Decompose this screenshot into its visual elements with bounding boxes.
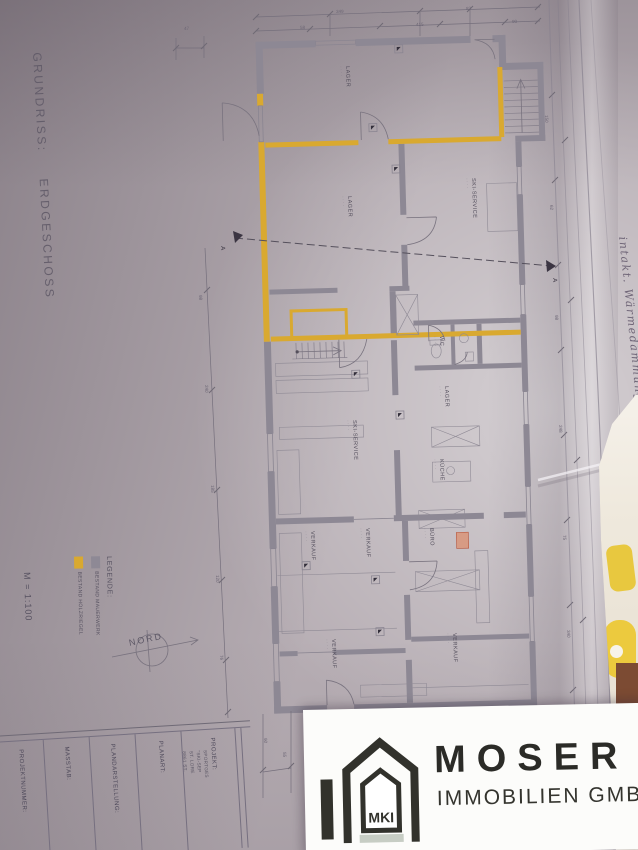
room-label: LAGER· · · ·: [341, 196, 353, 218]
dimension-number: 76: [219, 655, 224, 660]
titleblock-project-line: 8861 ST.: [182, 751, 188, 772]
dimension-number: 75: [562, 535, 567, 540]
dimension-number: 340: [566, 630, 571, 638]
building: [221, 34, 562, 715]
legend: LEGENDE: BESTAND MAUERWERKBESTAND HOLZRI…: [66, 556, 113, 636]
room-label: WC· · · ·: [433, 336, 444, 347]
mki-house-icon: MKI: [315, 719, 434, 849]
room-label: SKI-SERVICE· · · ·: [346, 420, 359, 461]
titleblock-project-line: ST. LORE: [189, 751, 195, 774]
background-highlight: [610, 645, 623, 658]
dimension-number: 415: [416, 22, 424, 27]
titleblock-field-label: PROJEKT:: [209, 737, 217, 770]
mki-badge-text: MKI: [368, 809, 394, 826]
room-label: SKI-SERVICE· · · ·: [465, 178, 478, 219]
legend-label: BESTAND MAUERWERK: [93, 571, 100, 636]
title-block: PROJEKTNUMMER:MASSTAB:PLANDARSTELLUNG:PL…: [0, 720, 258, 850]
dimension-number: 248: [558, 425, 563, 433]
legend-swatch: [91, 556, 100, 568]
titleblock-field-label: MASSTAB:: [63, 746, 71, 780]
dimension-number: 47: [184, 26, 189, 31]
dimension-number: 98: [554, 315, 559, 320]
dimension-number: 90: [263, 738, 268, 743]
titleblock-field-label: PROJEKTNUMMER:: [17, 749, 27, 813]
legend-items: BESTAND MAUERWERKBESTAND HOLZRIEGEL: [66, 556, 101, 636]
legend-swatch: [74, 557, 83, 569]
legend-heading: LEGENDE:: [105, 556, 113, 636]
dimension-number: 82: [466, 6, 471, 11]
floorplan-photo: .w{fill:#8d8894;} .yw{fill:#d9a930;} .tw…: [0, 0, 638, 850]
title-block-divider: [89, 737, 97, 850]
dimension-number: 120: [215, 575, 220, 583]
titleblock-project-line: "SKI-SEP: [196, 750, 202, 772]
section-marker-label: A: [219, 246, 225, 250]
yellow-object: [605, 544, 636, 593]
section-line: A A: [219, 231, 557, 282]
dimension-number: 90: [512, 19, 517, 24]
dimension-number: 98: [198, 295, 203, 300]
room-label: VERKAUF· · · ·: [359, 528, 371, 558]
room-label: LAGER· · · ·: [339, 66, 351, 88]
dimension-number: 185: [210, 485, 215, 493]
room-label: VERKAUF· · · ·: [304, 531, 316, 561]
dimension-lines: [173, 4, 586, 798]
title-block-divider: [43, 740, 51, 850]
titleblock-project-line: SPORTGES: [203, 750, 210, 778]
title-block-divider: [135, 734, 143, 850]
brand-subtitle: IMMOBILIEN GMBH: [437, 783, 638, 812]
room-label: KÜCHE· · · ·: [433, 459, 445, 481]
legend-item: BESTAND MAUERWERK: [83, 556, 101, 636]
room-label: VERKAUF· · · ·: [325, 639, 337, 669]
logo-card: MKI MOSER IMMOBILIEN GMBH: [303, 703, 638, 850]
title-block-divider: [180, 731, 188, 850]
dimension-number: 150: [544, 115, 549, 123]
dimension-number: 62: [549, 205, 554, 210]
dimension-number: 58: [300, 25, 305, 30]
timber-walls: [256, 67, 520, 342]
dimension-number: 55: [282, 752, 287, 757]
dimension-number: 240: [204, 385, 209, 393]
legend-item: BESTAND HOLZRIEGEL: [66, 557, 84, 637]
room-label: LAGER· · · ·: [438, 386, 450, 408]
staircase: [285, 79, 546, 359]
dimension-number: 349: [336, 9, 344, 14]
masonry-walls: [256, 34, 562, 714]
scale-note: M = 1:100: [22, 572, 34, 622]
section-marker-label: A: [551, 278, 557, 282]
titleblock-field-label: PLANART:: [157, 741, 165, 774]
titleblock-field-label: PLANDARSTELLUNG:: [109, 744, 119, 814]
room-label: BÜRO· · · ·: [423, 528, 435, 546]
room-label: VERKAUF· · · ·: [446, 633, 458, 663]
legend-label: BESTAND HOLZRIEGEL: [76, 572, 83, 636]
brand-name: MOSER: [434, 735, 629, 782]
